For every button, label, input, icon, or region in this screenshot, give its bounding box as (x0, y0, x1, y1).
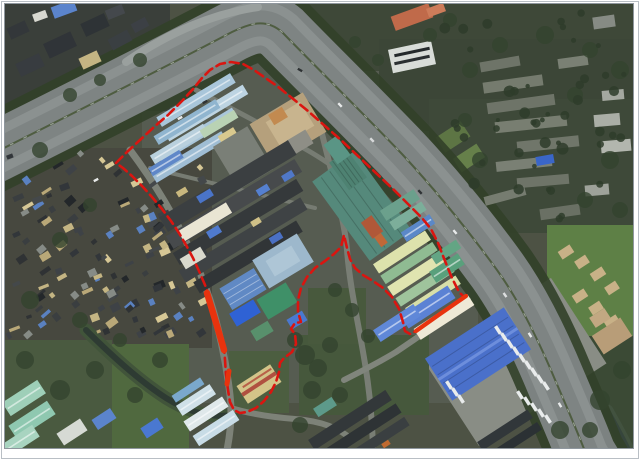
screenshot-frame (0, 0, 640, 460)
site-boundary-solid-segment (227, 371, 229, 384)
satellite-map-svg (5, 4, 633, 448)
satellite-image (5, 4, 633, 448)
